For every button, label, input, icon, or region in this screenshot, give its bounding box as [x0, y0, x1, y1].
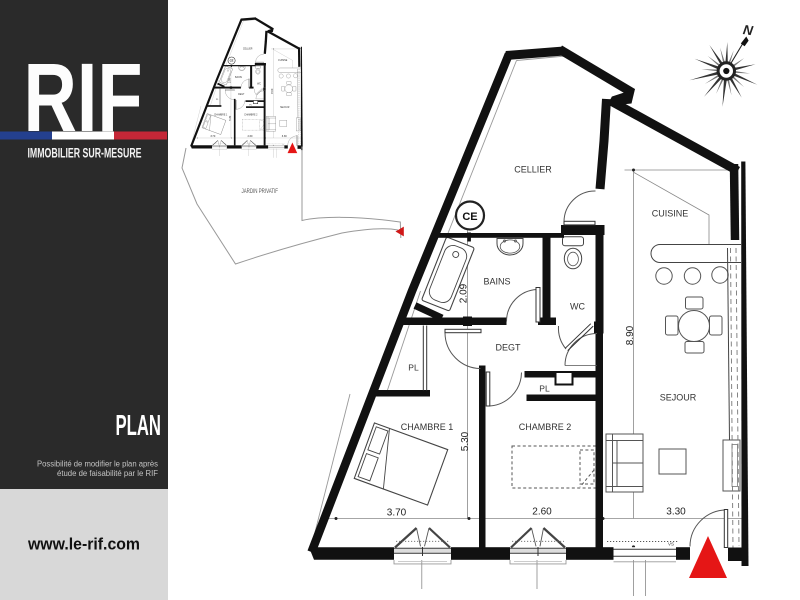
svg-text:2.60: 2.60 — [532, 507, 552, 518]
svg-text:8.90: 8.90 — [625, 325, 636, 345]
svg-text:CUISINE: CUISINE — [652, 209, 689, 219]
svg-text:3.30: 3.30 — [666, 507, 686, 518]
svg-text:étude de faisabilité par le RI: étude de faisabilité par le RIF — [57, 469, 158, 478]
svg-text:PLAN: PLAN — [116, 410, 162, 442]
svg-text:SEJOUR: SEJOUR — [660, 393, 697, 403]
svg-text:BAINS: BAINS — [483, 277, 510, 287]
svg-text:RIF: RIF — [24, 43, 143, 152]
svg-text:PL: PL — [408, 363, 419, 373]
svg-text:CE: CE — [462, 211, 477, 223]
svg-text:PL: PL — [539, 384, 550, 394]
svg-text:DEGT: DEGT — [495, 343, 521, 353]
svg-text:JARDIN PRIVATIF: JARDIN PRIVATIF — [242, 188, 279, 195]
svg-text:CHAMBRE 1: CHAMBRE 1 — [401, 422, 454, 432]
svg-text:www.le-rif.com: www.le-rif.com — [27, 536, 140, 554]
svg-text:VS: VS — [668, 542, 674, 547]
svg-text:CHAMBRE 2: CHAMBRE 2 — [519, 422, 572, 432]
svg-text:N: N — [742, 22, 754, 38]
svg-text:5.30: 5.30 — [460, 431, 471, 451]
svg-text:3.70: 3.70 — [387, 508, 407, 519]
svg-text:Possibilité de modifier le pla: Possibilité de modifier le plan après — [37, 460, 158, 469]
svg-text:CELLIER: CELLIER — [514, 165, 552, 175]
svg-text:IMMOBILIER SUR-MESURE: IMMOBILIER SUR-MESURE — [28, 146, 142, 161]
svg-text:2.09: 2.09 — [459, 283, 470, 303]
svg-text:WC: WC — [570, 302, 585, 312]
